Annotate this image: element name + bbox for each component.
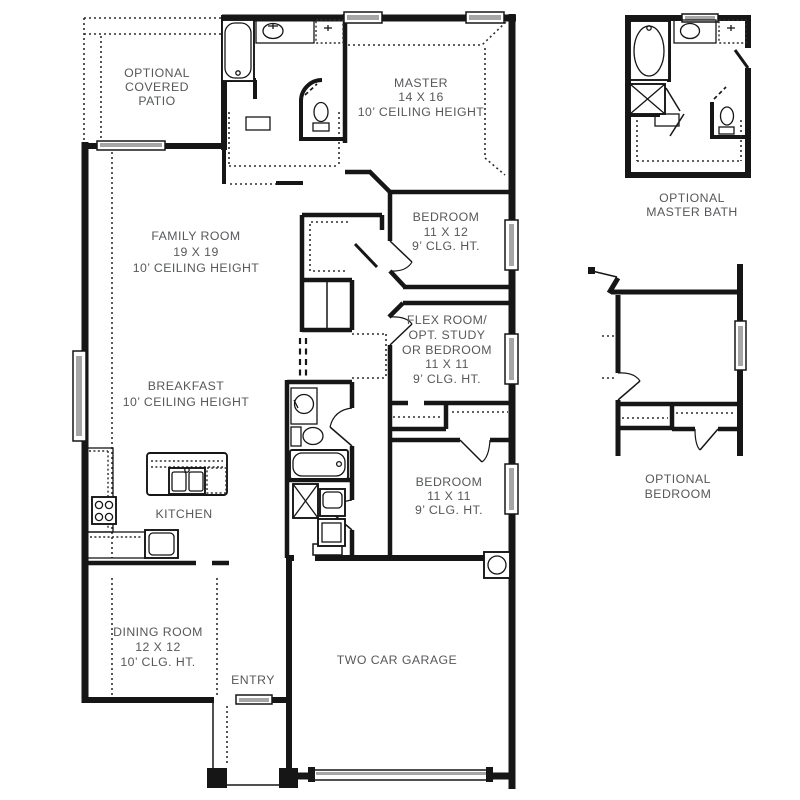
- garage-fixtures: [484, 552, 510, 578]
- bedroom2-door-leaf: [390, 241, 412, 262]
- master-tray-ceiling-top: [348, 22, 506, 45]
- bedroom3-label-line2: 11 X 11: [427, 489, 471, 503]
- porch-column: [207, 768, 227, 788]
- alignment-ticks: [602, 336, 616, 378]
- window-glass: [347, 15, 379, 20]
- sliding-door-glass: [100, 143, 162, 147]
- master-label-line1: MASTER: [394, 76, 448, 90]
- dining-label-line1: DINING ROOM: [113, 625, 203, 639]
- garage-label: TWO CAR GARAGE: [337, 653, 457, 667]
- optional-master-bath-plan: [625, 14, 751, 178]
- shower-icon: [316, 20, 343, 43]
- opt-master-bath-label-line1: OPTIONAL: [659, 191, 725, 205]
- bedroom3-door-leaf: [460, 440, 482, 462]
- kitchen-fixtures: [87, 448, 227, 558]
- toilet-tank: [719, 127, 734, 134]
- bedroom2-door-swing-icon: [390, 262, 412, 271]
- shower-door-leaf: [666, 88, 680, 111]
- wall-toilet-curve: [301, 80, 322, 101]
- hall-ceiling-box: [352, 334, 386, 378]
- optbed-closet-door-swing-icon: [695, 429, 700, 450]
- opt-bedroom-label-line1: OPTIONAL: [645, 472, 711, 486]
- dining-label-line2: 12 X 12: [135, 640, 181, 654]
- vanity-sink-icon: [295, 395, 314, 414]
- bedroom3-label-line1: BEDROOM: [416, 475, 483, 489]
- master-label-line3: 10’ CEILING HEIGHT: [358, 105, 485, 119]
- toilet-icon: [303, 428, 323, 445]
- optbed-door-leaf: [618, 381, 640, 400]
- kitchen-label: KITCHEN: [155, 507, 212, 521]
- garage-door-band: [316, 772, 486, 775]
- bath-door-swing-icon: [330, 408, 352, 427]
- window-glass: [76, 356, 82, 436]
- optbed-closet-shelves: [622, 413, 735, 418]
- opt-bedroom-label-line2: BEDROOM: [645, 487, 712, 501]
- garage-door-cap: [486, 767, 493, 782]
- flex-label-line4: 11 X 11: [425, 357, 469, 371]
- window-glass: [738, 326, 743, 366]
- kitchen-counter-bottom: [87, 532, 145, 558]
- dining-label-line3: 10’ CLG. HT.: [120, 655, 195, 669]
- room-labels: OPTIONAL COVERED PATIO MASTER 14 X 16 10…: [113, 66, 738, 687]
- front-door-glass: [239, 698, 269, 702]
- sink-faucet: [268, 24, 278, 29]
- patio-label-line2: COVERED: [125, 80, 189, 94]
- porch-column: [279, 768, 298, 788]
- patio-label-line1: OPTIONAL: [124, 66, 190, 80]
- window-glass: [509, 224, 514, 266]
- flex-label-line1: FLEX ROOM/: [407, 313, 487, 327]
- window-glass: [469, 15, 501, 20]
- toilet-tank: [313, 123, 329, 131]
- master-bath-fixtures: [222, 20, 343, 131]
- family-label-line2: 19 X 19: [173, 245, 219, 259]
- garage-door-cap: [308, 767, 315, 782]
- floor-plan-page: OPTIONAL COVERED PATIO MASTER 14 X 16 10…: [0, 0, 800, 800]
- floor-plan-svg: OPTIONAL COVERED PATIO MASTER 14 X 16 10…: [0, 0, 800, 800]
- flex-label-line5: 9’ CLG. HT.: [413, 372, 481, 386]
- breakfast-label-line1: BREAKFAST: [148, 379, 225, 393]
- vanity-counter: [256, 20, 314, 43]
- optbath-closet-shelves: [637, 120, 741, 161]
- flex-label-line2: OPT. STUDY: [409, 328, 486, 342]
- bathtub-icon: [290, 450, 348, 479]
- window-glass: [509, 338, 514, 380]
- optbed-closet-bottom: [618, 428, 740, 429]
- master-tray-ceiling-side: [485, 48, 505, 175]
- wall-bedroom2-diag: [390, 271, 405, 287]
- entry-label: ENTRY: [231, 673, 275, 687]
- window-glass: [509, 468, 514, 510]
- optbed-closet-door-leaf: [700, 429, 718, 450]
- bedroom2-label-line3: 9’ CLG. HT.: [412, 239, 480, 253]
- breakfast-label-line2: 10’ CEILING HEIGHT: [123, 395, 250, 409]
- toilet-door-dash: [714, 87, 726, 99]
- wall-break-marker: [588, 267, 595, 274]
- wall-toilet-room: [301, 99, 346, 141]
- bedroom2-label-line1: BEDROOM: [413, 210, 480, 224]
- bath-bench: [246, 117, 270, 130]
- opt-master-bath-label-line2: MASTER BATH: [646, 205, 738, 219]
- range-icon: [92, 497, 116, 524]
- shower-head: [324, 25, 332, 31]
- optbath-door-leaf: [735, 50, 748, 68]
- closet-door-leaf: [670, 114, 684, 136]
- shower-head: [727, 25, 735, 31]
- toilet-icon: [721, 107, 734, 125]
- hall-closet-shelves: [310, 222, 348, 271]
- optional-bedroom-plan: [588, 264, 746, 456]
- toilet-tank: [291, 427, 301, 446]
- vanity-sink-icon: [681, 24, 700, 39]
- toilet-icon: [314, 103, 328, 122]
- family-label-line1: FAMILY ROOM: [151, 229, 240, 243]
- wall-break-line: [592, 271, 617, 277]
- wall-master-bottom: [345, 171, 391, 193]
- flex-label-line3: OR BEDROOM: [402, 343, 492, 357]
- bedroom2-label-line2: 11 X 12: [424, 225, 469, 239]
- entry-porch: [207, 703, 298, 788]
- bedroom3-door-swing-icon: [482, 440, 490, 462]
- shower-icon: [719, 20, 746, 43]
- closet-door-leaf: [355, 244, 377, 267]
- bath-door-leaf: [330, 427, 352, 446]
- family-label-line3: 10’ CEILING HEIGHT: [133, 261, 260, 275]
- patio-label-line3: PATIO: [138, 94, 175, 108]
- bedroom3-label-line3: 9’ CLG. HT.: [415, 503, 483, 517]
- bathtub-icon: [222, 20, 254, 81]
- optbed-door-swing-icon: [618, 373, 640, 381]
- wall-bath-tub: [222, 80, 256, 99]
- master-label-line2: 14 X 16: [398, 90, 444, 104]
